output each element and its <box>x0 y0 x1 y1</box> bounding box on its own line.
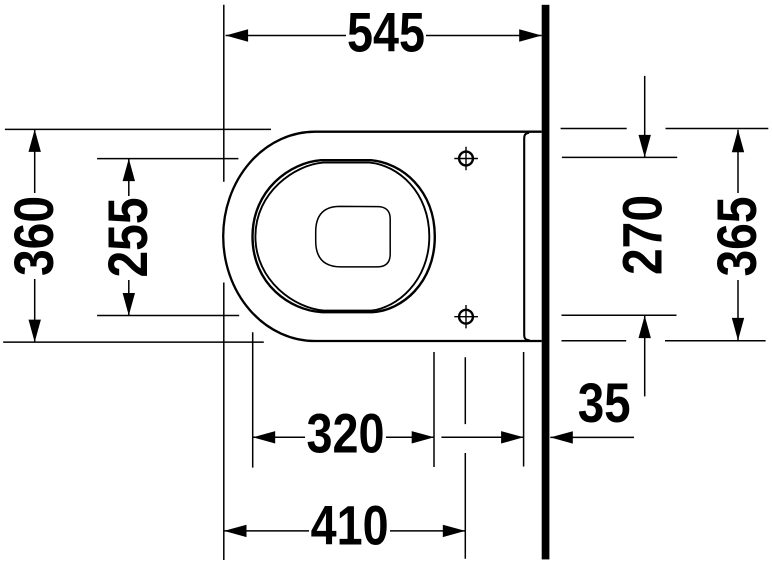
svg-text:410: 410 <box>311 494 389 556</box>
svg-text:35: 35 <box>578 372 631 434</box>
svg-text:270: 270 <box>611 195 673 275</box>
svg-text:360: 360 <box>3 196 65 276</box>
svg-text:365: 365 <box>706 197 768 277</box>
svg-text:320: 320 <box>307 403 385 465</box>
svg-text:545: 545 <box>347 2 425 64</box>
svg-text:255: 255 <box>97 198 159 278</box>
